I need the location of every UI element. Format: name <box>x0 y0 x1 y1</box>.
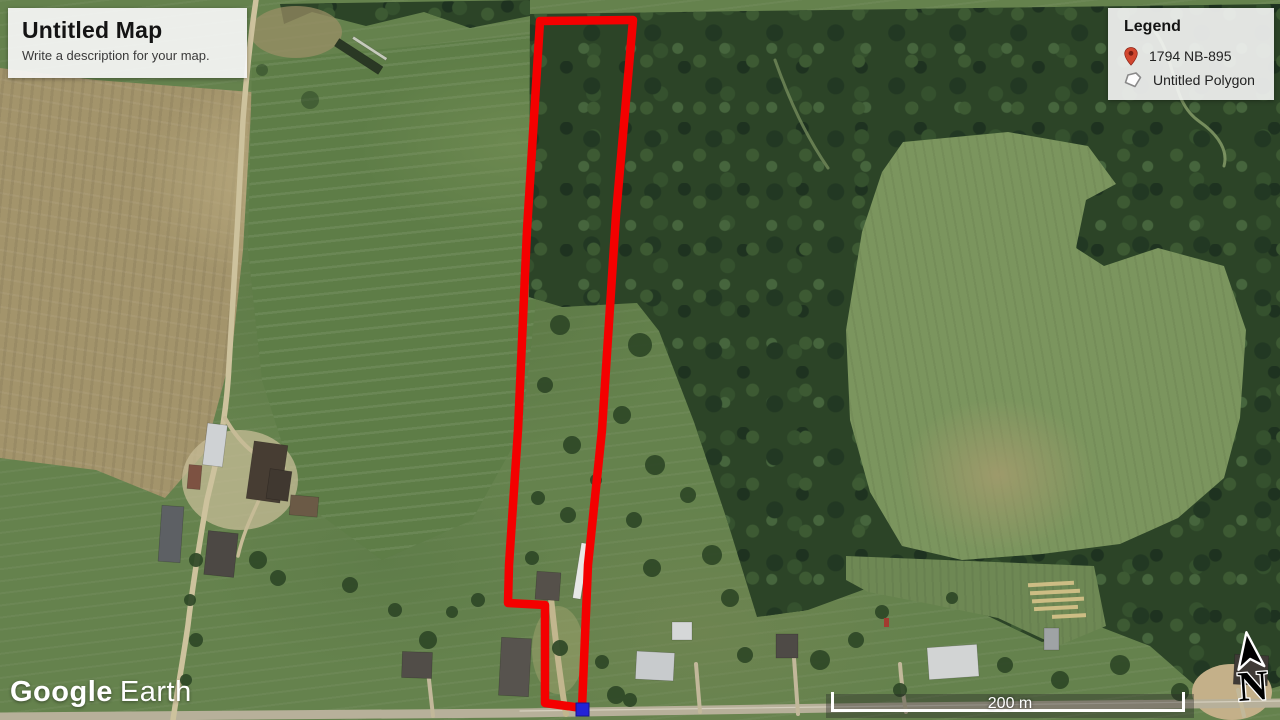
north-arrow: N <box>1222 628 1280 708</box>
google-brand-text: Google <box>10 676 113 708</box>
map-pin-icon <box>1124 47 1138 66</box>
buildings-group <box>158 36 1269 696</box>
vertex-marker[interactable] <box>576 703 589 716</box>
page-title: Untitled Map <box>22 17 233 43</box>
compass-n-label: N <box>1236 663 1269 708</box>
polygon-icon <box>1124 72 1142 88</box>
scale-bar-label: 200 m <box>826 695 1194 713</box>
legend[interactable]: Legend 1794 NB-895 Untitled Polygon <box>1108 8 1274 100</box>
roads-group <box>0 0 1280 720</box>
legend-item-label: Untitled Polygon <box>1153 72 1255 88</box>
map-features <box>0 0 1280 720</box>
legend-item-label: 1794 NB-895 <box>1149 48 1232 64</box>
map-description: Write a description for your map. <box>22 48 233 63</box>
ground-patches <box>182 6 1272 720</box>
map-canvas[interactable]: Untitled Map Write a description for you… <box>0 0 1280 720</box>
legend-item-polygon[interactable]: Untitled Polygon <box>1124 68 1266 92</box>
hay-bales <box>1028 581 1086 619</box>
boundary-polygon[interactable] <box>508 20 633 708</box>
google-earth-logo: GoogleEarth <box>10 676 192 709</box>
legend-title: Legend <box>1124 18 1266 36</box>
earth-product-text: Earth <box>120 676 192 708</box>
legend-item-placemark[interactable]: 1794 NB-895 <box>1124 44 1266 68</box>
title-box[interactable]: Untitled Map Write a description for you… <box>8 8 247 78</box>
